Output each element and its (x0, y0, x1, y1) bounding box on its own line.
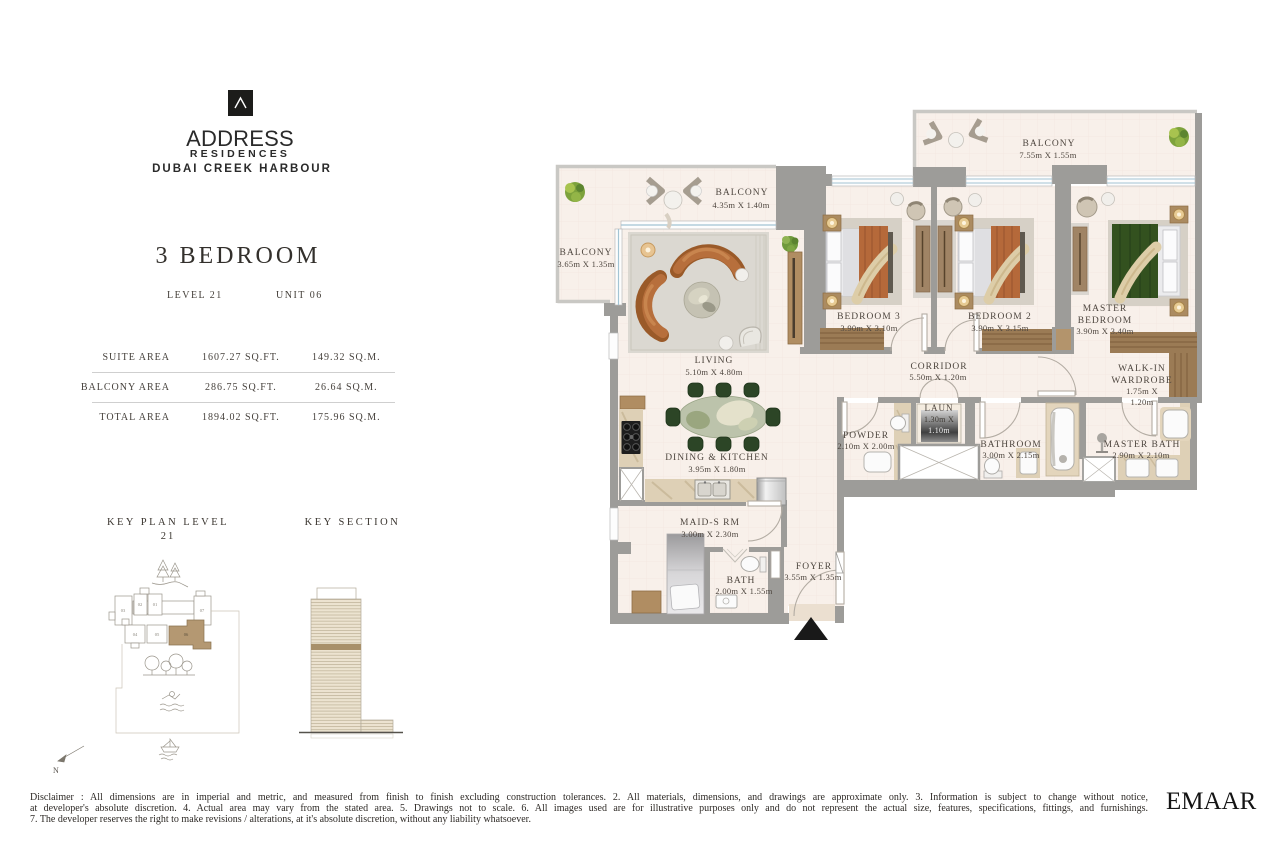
svg-text:3.95m X 1.80m: 3.95m X 1.80m (688, 464, 745, 474)
svg-text:BATHROOM: BATHROOM (980, 440, 1041, 450)
svg-text:N: N (53, 766, 59, 775)
svg-text:02: 02 (138, 602, 143, 607)
svg-text:MASTER BATH: MASTER BATH (1104, 440, 1181, 450)
svg-text:POWDER: POWDER (843, 431, 889, 441)
svg-text:3.90m X 3.40m: 3.90m X 3.40m (1076, 326, 1133, 336)
svg-text:01: 01 (153, 602, 158, 607)
svg-text:06: 06 (184, 632, 189, 637)
svg-text:1.20m: 1.20m (1131, 397, 1154, 407)
svg-text:LAUN: LAUN (925, 403, 954, 413)
svg-text:DINING & KITCHEN: DINING & KITCHEN (665, 453, 769, 463)
svg-text:05: 05 (155, 632, 160, 637)
svg-text:5.10m X 4.80m: 5.10m X 4.80m (685, 367, 742, 377)
svg-text:BEDROOM 2: BEDROOM 2 (968, 312, 1032, 322)
svg-text:MASTER: MASTER (1083, 304, 1128, 314)
svg-text:WALK-IN: WALK-IN (1118, 364, 1166, 374)
svg-text:2.90m X 2.10m: 2.90m X 2.10m (1112, 450, 1169, 460)
svg-text:MAID-S RM: MAID-S RM (680, 518, 740, 528)
svg-text:04: 04 (133, 632, 138, 637)
svg-text:3.90m X 3.15m: 3.90m X 3.15m (971, 323, 1028, 333)
svg-text:3.65m X 1.35m: 3.65m X 1.35m (557, 259, 614, 269)
svg-text:2.10m X 2.00m: 2.10m X 2.00m (837, 441, 894, 451)
svg-text:03: 03 (121, 608, 126, 613)
svg-text:07: 07 (200, 608, 205, 613)
svg-text:BEDROOM: BEDROOM (1078, 316, 1133, 326)
svg-text:LIVING: LIVING (695, 356, 734, 366)
svg-text:BALCONY: BALCONY (1023, 139, 1076, 149)
svg-text:BALCONY: BALCONY (716, 188, 769, 198)
svg-text:7.55m X 1.55m: 7.55m X 1.55m (1019, 150, 1076, 160)
svg-text:4.35m X 1.40m: 4.35m X 1.40m (712, 200, 769, 210)
svg-text:FOYER: FOYER (796, 562, 832, 572)
svg-text:BATH: BATH (727, 576, 756, 586)
svg-text:3.90m X 3.10m: 3.90m X 3.10m (840, 323, 897, 333)
svg-text:BALCONY: BALCONY (560, 248, 613, 258)
svg-text:3.55m X 1.35m: 3.55m X 1.35m (784, 572, 841, 582)
svg-text:5.50m X 1.20m: 5.50m X 1.20m (909, 372, 966, 382)
svg-text:2.00m X 1.55m: 2.00m X 1.55m (715, 586, 772, 596)
svg-text:1.10m: 1.10m (928, 426, 950, 435)
svg-text:3.00m X 2.15m: 3.00m X 2.15m (982, 450, 1039, 460)
svg-text:WARDROBE: WARDROBE (1111, 376, 1172, 386)
svg-text:3.00m X 2.30m: 3.00m X 2.30m (681, 529, 738, 539)
svg-text:1.30m X: 1.30m X (924, 415, 954, 424)
svg-text:BEDROOM 3: BEDROOM 3 (837, 312, 901, 322)
svg-text:CORRIDOR: CORRIDOR (910, 362, 967, 372)
svg-text:1.75m X: 1.75m X (1126, 386, 1158, 396)
